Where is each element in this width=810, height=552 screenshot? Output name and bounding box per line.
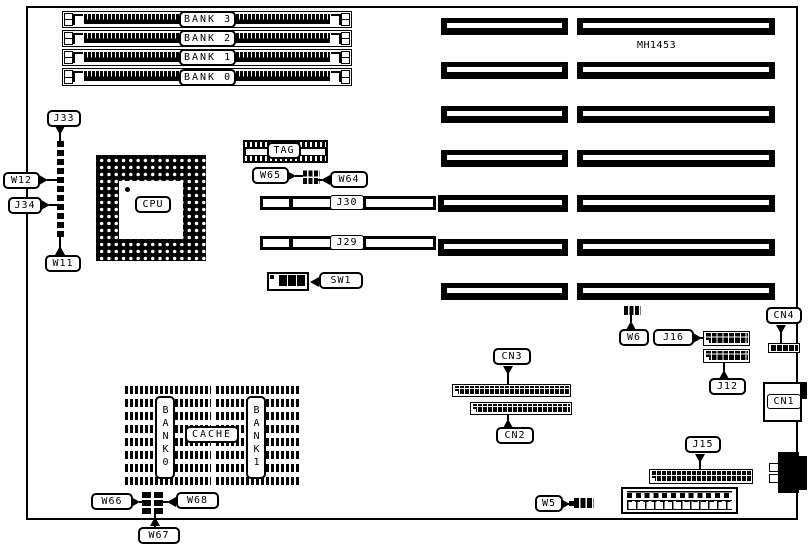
switch-pos-1 xyxy=(270,275,278,286)
jumper-w6 xyxy=(624,306,641,315)
dip-switch-sw1 xyxy=(267,272,309,291)
label-w6: W6 xyxy=(619,329,649,346)
jumper-w5 xyxy=(574,498,594,508)
power-socket-row xyxy=(627,500,732,510)
label-cn4: CN4 xyxy=(766,307,802,324)
label-bank1: BANK 1 xyxy=(179,49,236,66)
connector-notch xyxy=(769,463,779,472)
simm-end-clip xyxy=(64,51,73,64)
board-part-number: MH1453 xyxy=(637,40,676,51)
pin1-marker xyxy=(455,391,458,394)
label-bank3: BANK 3 xyxy=(179,11,236,28)
header-pins xyxy=(705,351,748,361)
isa-slot-stripe xyxy=(444,244,562,249)
isa-slot-stripe xyxy=(583,23,769,28)
label-cache-bank0: BANK0 xyxy=(155,396,175,479)
isa-slot xyxy=(441,150,568,167)
isa-slot xyxy=(577,283,775,300)
jumper-ladder-j33 xyxy=(57,141,64,237)
isa-slot-stripe xyxy=(447,111,562,116)
connector-notch xyxy=(769,474,779,483)
header-cn4 xyxy=(768,343,800,353)
callout-arrow xyxy=(55,246,65,255)
pin1-marker xyxy=(706,357,709,360)
isa-slot xyxy=(577,106,775,123)
slot-key xyxy=(293,239,331,247)
isa-slot xyxy=(577,18,775,35)
callout-stem xyxy=(723,362,725,371)
isa-slot-stripe xyxy=(447,155,562,160)
label-j12: J12 xyxy=(709,378,746,395)
label-w68: W68 xyxy=(176,492,219,509)
isa-slot xyxy=(441,283,568,300)
simm-latch-icon xyxy=(73,71,83,82)
label-bank2: BANK 2 xyxy=(179,30,236,47)
isa-slot xyxy=(577,239,775,256)
label-cache: CACHE xyxy=(185,426,239,443)
pin1-marker xyxy=(706,340,709,343)
simm-end-clip xyxy=(341,13,350,26)
header-pins xyxy=(472,404,570,413)
pin1-marker xyxy=(652,478,655,481)
isa-slot xyxy=(577,195,775,212)
simm-latch-icon xyxy=(331,14,341,25)
label-cpu: CPU xyxy=(135,196,171,213)
isa-slot-stripe xyxy=(583,244,769,249)
simm-latch-icon xyxy=(73,14,83,25)
isa-slot xyxy=(441,62,568,79)
label-w11: W11 xyxy=(45,255,81,272)
switch-pos-4 xyxy=(297,275,305,286)
callout-arrow xyxy=(321,175,330,185)
callout-stem xyxy=(630,314,632,322)
motherboard-diagram: MH1453 BANK 3 BANK 2 BANK 1 BANK 0 xyxy=(0,0,810,552)
isa-slot xyxy=(441,18,568,35)
simm-end-clip xyxy=(341,51,350,64)
callout-stem xyxy=(699,460,701,469)
header-cn2 xyxy=(470,402,572,415)
callout-stem xyxy=(49,204,57,206)
slot-key xyxy=(366,199,433,207)
label-j16: J16 xyxy=(653,329,694,346)
isa-slot-stripe xyxy=(447,288,562,293)
pin1-marker xyxy=(125,187,130,192)
label-w65: W65 xyxy=(252,167,289,184)
isa-slot xyxy=(577,150,775,167)
simm-end-clip xyxy=(64,70,73,84)
header-j12 xyxy=(703,349,750,363)
label-sw1: SW1 xyxy=(319,272,363,289)
callout-stem xyxy=(162,501,168,503)
label-cn2: CN2 xyxy=(496,427,534,444)
label-w12: W12 xyxy=(3,172,40,189)
simm-end-clip xyxy=(64,13,73,26)
power-inlet-connector xyxy=(797,456,807,490)
label-j15: J15 xyxy=(685,436,721,453)
isa-slot-stripe xyxy=(447,23,562,28)
slot-key xyxy=(263,239,289,247)
header-pins xyxy=(454,386,569,395)
header-j16 xyxy=(703,331,750,346)
callout-stem xyxy=(699,337,703,339)
isa-slot-stripe xyxy=(447,67,562,72)
isa-slot-stripe xyxy=(583,111,769,116)
power-inlet-connector xyxy=(778,452,799,493)
label-j30: J30 xyxy=(330,195,364,210)
header-cn3 xyxy=(452,384,571,397)
label-w66: W66 xyxy=(91,493,133,510)
label-w67: W67 xyxy=(138,527,180,544)
jumper-block-w64-w65 xyxy=(303,169,320,184)
callout-arrow xyxy=(150,517,160,526)
label-tag: TAG xyxy=(267,142,301,159)
simm-latch-icon xyxy=(73,33,83,44)
switch-pos-3 xyxy=(288,275,296,286)
simm-end-clip xyxy=(341,70,350,84)
callout-arrow xyxy=(310,277,319,287)
pin1-marker xyxy=(473,409,476,412)
slot-key xyxy=(293,199,331,207)
callout-stem xyxy=(780,331,782,343)
label-bank0: BANK 0 xyxy=(179,69,236,86)
header-pins xyxy=(705,333,748,344)
simm-end-clip xyxy=(64,32,73,45)
callout-stem xyxy=(295,175,303,177)
slot-key xyxy=(263,199,289,207)
isa-slot-stripe xyxy=(444,200,562,205)
isa-slot-stripe xyxy=(583,155,769,160)
callout-arrow xyxy=(167,497,176,507)
callout-stem xyxy=(59,132,61,142)
jumper-block-w66-w67-w68 xyxy=(142,491,163,514)
simm-end-clip xyxy=(341,32,350,45)
label-j29: J29 xyxy=(330,235,364,250)
label-j34: J34 xyxy=(8,197,42,214)
callout-stem xyxy=(507,372,509,384)
callout-stem xyxy=(47,179,57,181)
label-j33: J33 xyxy=(47,110,81,127)
isa-slot xyxy=(438,239,568,256)
switch-pos-2 xyxy=(279,275,287,286)
isa-slot xyxy=(438,195,568,212)
power-pin-row xyxy=(627,491,732,498)
label-w5: W5 xyxy=(535,495,563,512)
simm-latch-icon xyxy=(331,33,341,44)
isa-slot-stripe xyxy=(583,200,769,205)
simm-latch-icon xyxy=(331,52,341,63)
callout-stem xyxy=(507,414,509,420)
header-pins xyxy=(651,471,751,482)
label-cn1: CN1 xyxy=(767,394,801,409)
simm-latch-icon xyxy=(331,71,341,82)
label-w64: W64 xyxy=(330,171,368,188)
slot-key xyxy=(366,239,433,247)
callout-stem xyxy=(567,503,570,505)
callout-stem xyxy=(318,179,322,181)
at-power-connector xyxy=(621,487,738,514)
label-cn3: CN3 xyxy=(493,348,531,365)
isa-slot xyxy=(441,106,568,123)
callout-stem xyxy=(139,501,143,503)
isa-slot-stripe xyxy=(583,67,769,72)
label-cache-bank1: BANK1 xyxy=(246,396,266,479)
isa-slot xyxy=(577,62,775,79)
header-j15 xyxy=(649,469,753,484)
isa-slot-stripe xyxy=(583,288,769,293)
header-pins xyxy=(770,345,798,351)
simm-latch-icon xyxy=(73,52,83,63)
